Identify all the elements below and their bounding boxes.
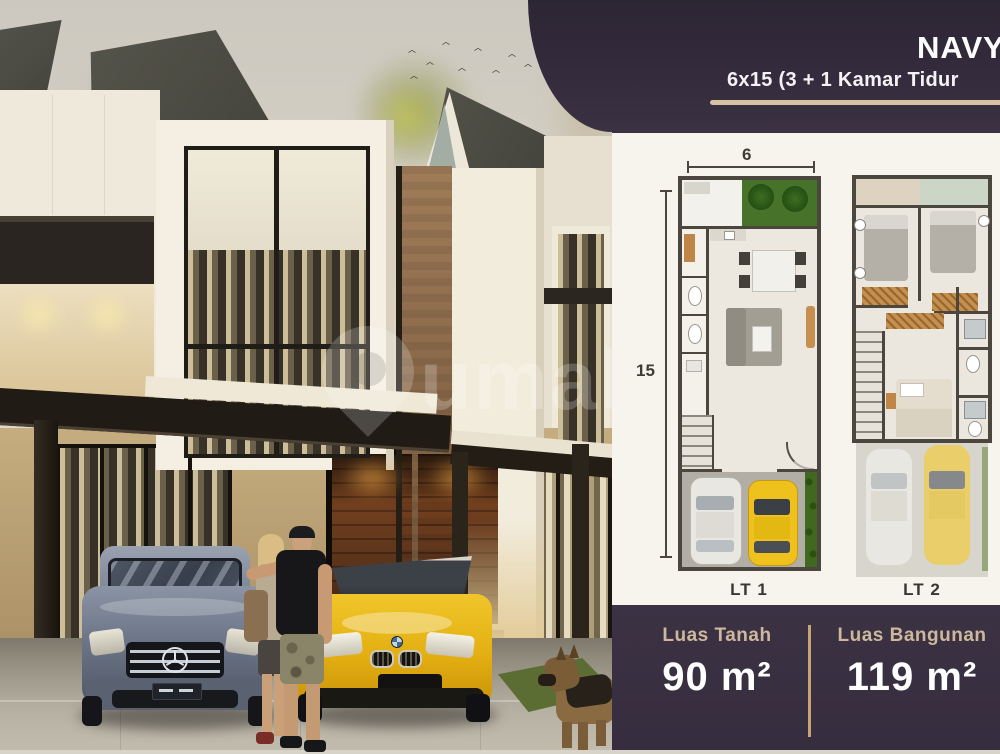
stairs bbox=[682, 415, 712, 471]
shower bbox=[964, 401, 986, 419]
chair bbox=[739, 252, 750, 265]
panel-title: NAVY bbox=[917, 30, 1000, 66]
stairs bbox=[856, 331, 882, 439]
door-downlight-glow bbox=[340, 456, 404, 500]
toilet bbox=[966, 355, 980, 373]
third-balcony-rail bbox=[544, 288, 612, 304]
man-arm bbox=[318, 564, 332, 644]
wall-downlight-glow bbox=[14, 292, 64, 338]
hedge bbox=[805, 472, 817, 567]
couple bbox=[240, 524, 340, 754]
man-shorts bbox=[280, 634, 324, 684]
info-panel: NAVY 6x15 (3 + 1 Kamar Tidur 6 15 bbox=[612, 0, 1000, 750]
dog-leg bbox=[596, 720, 606, 746]
bmw-roundel-icon bbox=[391, 636, 403, 648]
bench bbox=[806, 306, 815, 348]
wall-lamp bbox=[854, 219, 866, 231]
dog-leg bbox=[562, 722, 572, 748]
license-plate bbox=[152, 683, 202, 700]
dining-table bbox=[752, 250, 796, 292]
bmw-kidney-grille bbox=[370, 650, 394, 668]
spec-land-label: Luas Tanah bbox=[632, 625, 802, 647]
bed bbox=[930, 211, 976, 273]
lt2-label: LT 2 bbox=[882, 580, 962, 600]
bed bbox=[864, 215, 908, 281]
chair bbox=[795, 275, 806, 288]
man-leg bbox=[306, 684, 320, 740]
spec-building-label: Luas Bangunan bbox=[828, 625, 996, 647]
spec-divider bbox=[808, 625, 811, 737]
flyer-root: { "panel": { "title": "NAVY", "subtitle"… bbox=[0, 0, 1000, 750]
dog-leg bbox=[578, 722, 588, 750]
wardrobe bbox=[862, 287, 908, 305]
mercedes-star-icon bbox=[162, 647, 188, 673]
chair bbox=[795, 252, 806, 265]
door-arc bbox=[786, 442, 814, 470]
dim-depth-arrow bbox=[665, 190, 667, 558]
spec-building-value: 119 m² bbox=[828, 655, 996, 700]
wall-lamp bbox=[978, 215, 990, 227]
woman-shoe bbox=[256, 732, 274, 744]
toilet bbox=[688, 324, 702, 344]
carport-post bbox=[572, 444, 589, 666]
floorplan-card: 6 15 bbox=[612, 133, 1000, 605]
man-cap bbox=[289, 526, 315, 538]
spec-land: Luas Tanah 90 m² bbox=[632, 625, 802, 700]
lt2-ghost-carport bbox=[856, 443, 988, 577]
floorplan-lt1 bbox=[678, 176, 821, 571]
plan-car-yellow bbox=[748, 480, 798, 566]
man-leg bbox=[284, 684, 298, 736]
bed bbox=[896, 379, 952, 437]
man-shoe bbox=[280, 736, 302, 748]
dim-width-label: 6 bbox=[742, 145, 751, 165]
spec-building: Luas Bangunan 119 m² bbox=[828, 625, 996, 700]
lt1-label: LT 1 bbox=[709, 580, 789, 600]
wall-downlight-glow bbox=[82, 292, 132, 338]
floorplan-lt2 bbox=[852, 175, 992, 443]
chair bbox=[886, 393, 896, 409]
balcony-rail bbox=[0, 222, 154, 284]
panel-subtitle: 6x15 (3 + 1 Kamar Tidur bbox=[727, 69, 959, 92]
car-headlight bbox=[88, 628, 125, 656]
woman-leg bbox=[262, 674, 272, 734]
man-shoe bbox=[304, 740, 326, 752]
toilet bbox=[968, 421, 982, 437]
bmw-kidney-grille bbox=[398, 650, 422, 668]
plan-car-white bbox=[690, 477, 742, 565]
shower bbox=[964, 319, 986, 339]
dog-ear bbox=[556, 646, 566, 660]
car-wheel bbox=[466, 694, 490, 722]
wardrobe bbox=[932, 293, 978, 311]
wardrobe bbox=[886, 313, 944, 329]
wall-lamp bbox=[854, 267, 866, 279]
spec-land-value: 90 m² bbox=[632, 655, 802, 700]
toilet bbox=[688, 286, 702, 306]
dim-width-arrow bbox=[687, 166, 815, 168]
dog-ear bbox=[569, 644, 579, 658]
woman-bag bbox=[244, 590, 268, 642]
chair bbox=[739, 275, 750, 288]
car-wheel bbox=[82, 696, 102, 726]
dim-depth-label: 15 bbox=[636, 361, 655, 381]
header-underline bbox=[710, 100, 1000, 105]
dog-snout bbox=[538, 674, 556, 686]
